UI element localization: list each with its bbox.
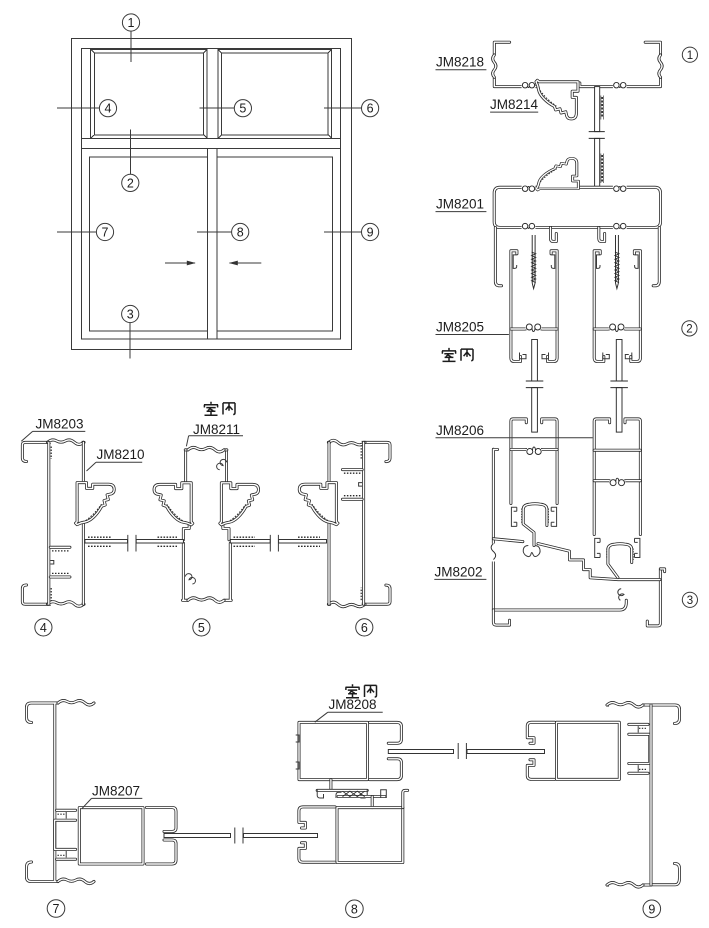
svg-text:2: 2 <box>686 324 692 336</box>
svg-text:9: 9 <box>648 902 655 916</box>
svg-text:7: 7 <box>53 902 60 916</box>
svg-text:9: 9 <box>367 226 374 240</box>
svg-text:JM8211: JM8211 <box>193 422 240 437</box>
svg-text:2: 2 <box>127 176 134 190</box>
svg-text:6: 6 <box>367 102 374 116</box>
svg-text:JM8210: JM8210 <box>97 447 145 462</box>
svg-text:1: 1 <box>128 16 135 30</box>
svg-text:JM8208: JM8208 <box>329 697 377 712</box>
svg-text:5: 5 <box>239 102 246 116</box>
svg-text:8: 8 <box>351 902 358 916</box>
svg-text:5: 5 <box>198 621 205 635</box>
svg-text:JM8205: JM8205 <box>436 319 484 334</box>
svg-text:JM8202: JM8202 <box>435 564 483 579</box>
svg-text:8: 8 <box>237 226 244 240</box>
svg-text:JM8207: JM8207 <box>92 783 140 798</box>
svg-text:JM8203: JM8203 <box>36 417 84 432</box>
svg-text:4: 4 <box>105 102 112 116</box>
svg-text:4: 4 <box>40 621 47 635</box>
svg-text:3: 3 <box>687 595 693 607</box>
svg-text:JM8201: JM8201 <box>436 197 484 212</box>
svg-text:7: 7 <box>102 226 109 240</box>
svg-text:6: 6 <box>361 621 368 635</box>
svg-text:JM8214: JM8214 <box>490 97 539 112</box>
svg-text:JM8218: JM8218 <box>436 55 484 70</box>
svg-text:1: 1 <box>687 50 693 62</box>
svg-text:JM8206: JM8206 <box>436 423 484 438</box>
svg-text:3: 3 <box>127 308 134 322</box>
